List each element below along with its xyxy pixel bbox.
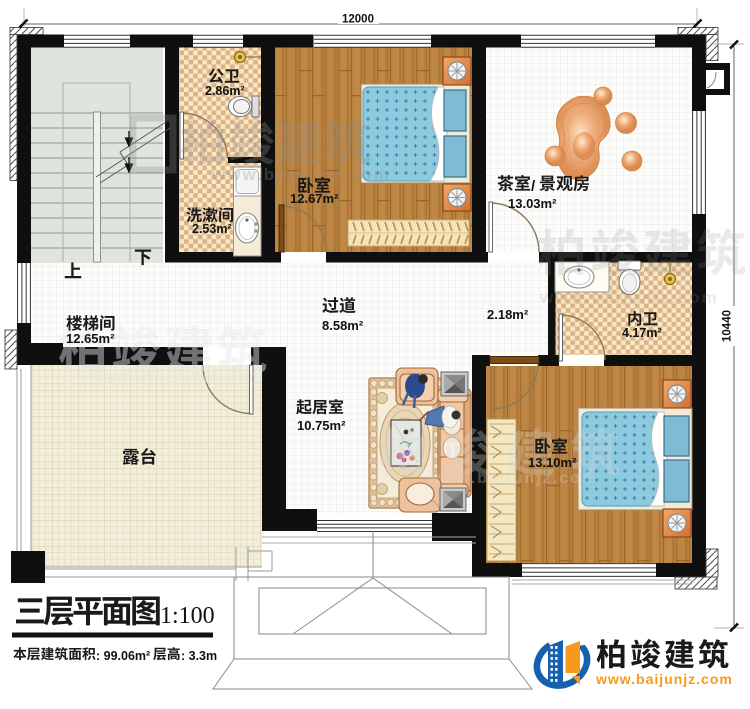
svg-text:2.86m²: 2.86m²	[205, 84, 245, 98]
svg-text:10440: 10440	[722, 310, 734, 342]
svg-text:12.67m²: 12.67m²	[290, 191, 339, 206]
svg-text:13.10m²: 13.10m²	[528, 455, 577, 470]
svg-text:www.baijunjz.com: www.baijunjz.com	[595, 671, 733, 687]
svg-text:4.17m²: 4.17m²	[622, 326, 662, 340]
svg-text:10.75m²: 10.75m²	[297, 418, 346, 433]
svg-text:1:100: 1:100	[160, 603, 215, 629]
svg-text:13.03m²: 13.03m²	[508, 196, 557, 211]
svg-text:8.58m²: 8.58m²	[322, 318, 364, 333]
svg-text:12000: 12000	[342, 14, 374, 26]
svg-text:2.18m²: 2.18m²	[487, 307, 529, 322]
svg-text:: 3.3m: : 3.3m	[181, 649, 217, 663]
svg-text:www.baijunjz.com: www.baijunjz.com	[211, 165, 391, 184]
svg-text:www.baijunjz.com: www.baijunjz.com	[94, 368, 265, 385]
svg-text:: 99.06m²: : 99.06m²	[96, 649, 150, 663]
svg-text:12.65m²: 12.65m²	[66, 331, 115, 346]
svg-text:2.53m²: 2.53m²	[192, 222, 232, 236]
svg-text:www.baijunjz.com: www.baijunjz.com	[427, 470, 598, 487]
svg-text:www.baijunjz.com: www.baijunjz.com	[539, 288, 719, 307]
